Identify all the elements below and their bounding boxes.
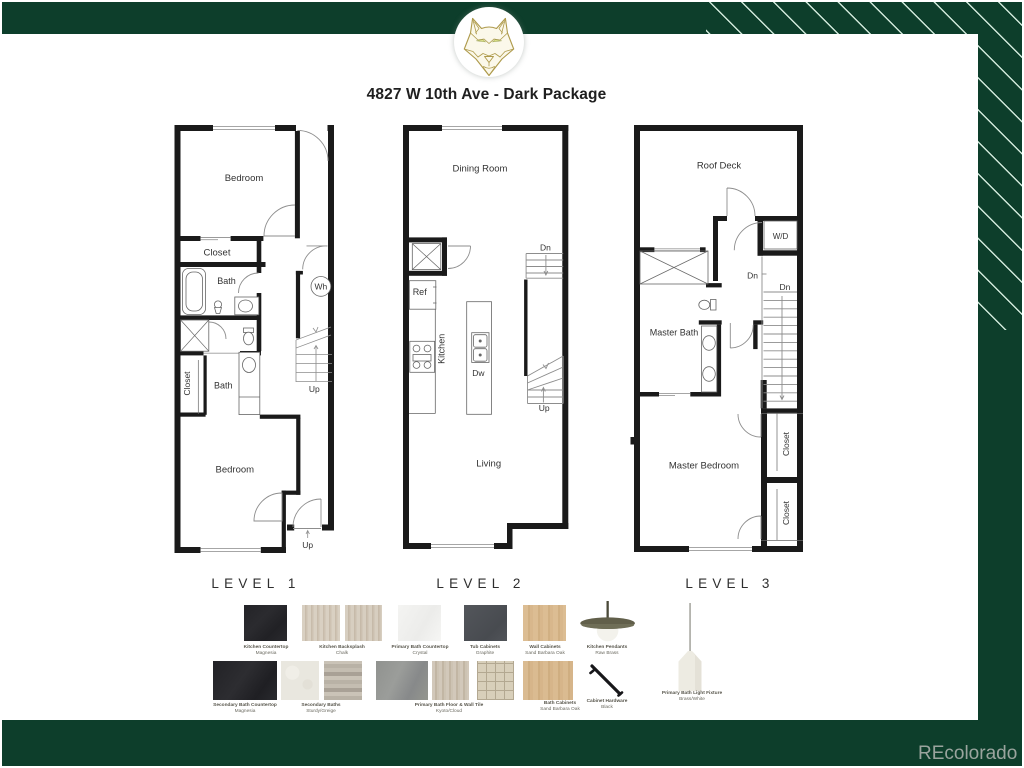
svg-text:Bath: Bath <box>217 276 236 286</box>
svg-text:Up: Up <box>309 384 320 394</box>
svg-text:Dw: Dw <box>472 368 485 378</box>
svg-text:Master Bath: Master Bath <box>650 328 699 338</box>
svg-text:Bedroom: Bedroom <box>216 465 255 476</box>
svg-text:Up: Up <box>302 540 313 550</box>
svg-text:Closet: Closet <box>781 431 791 456</box>
svg-text:Kitchen: Kitchen <box>437 334 447 364</box>
svg-text:W/D: W/D <box>773 232 789 241</box>
svg-text:Dn: Dn <box>747 271 758 281</box>
svg-text:Dining Room: Dining Room <box>453 164 508 175</box>
svg-text:Up: Up <box>539 403 550 413</box>
svg-text:Bedroom: Bedroom <box>225 173 264 184</box>
svg-text:Bath: Bath <box>214 381 233 391</box>
svg-text:Living: Living <box>476 459 501 470</box>
svg-text:Closet: Closet <box>781 500 791 525</box>
svg-text:Closet: Closet <box>204 248 231 259</box>
svg-text:Ref: Ref <box>413 287 428 297</box>
svg-text:Wh: Wh <box>315 282 328 292</box>
svg-text:Roof Deck: Roof Deck <box>697 161 742 172</box>
svg-text:Closet: Closet <box>182 371 192 396</box>
svg-text:Dn: Dn <box>540 243 551 253</box>
svg-text:Master Bedroom: Master Bedroom <box>669 461 739 472</box>
svg-text:Dn: Dn <box>779 282 790 292</box>
